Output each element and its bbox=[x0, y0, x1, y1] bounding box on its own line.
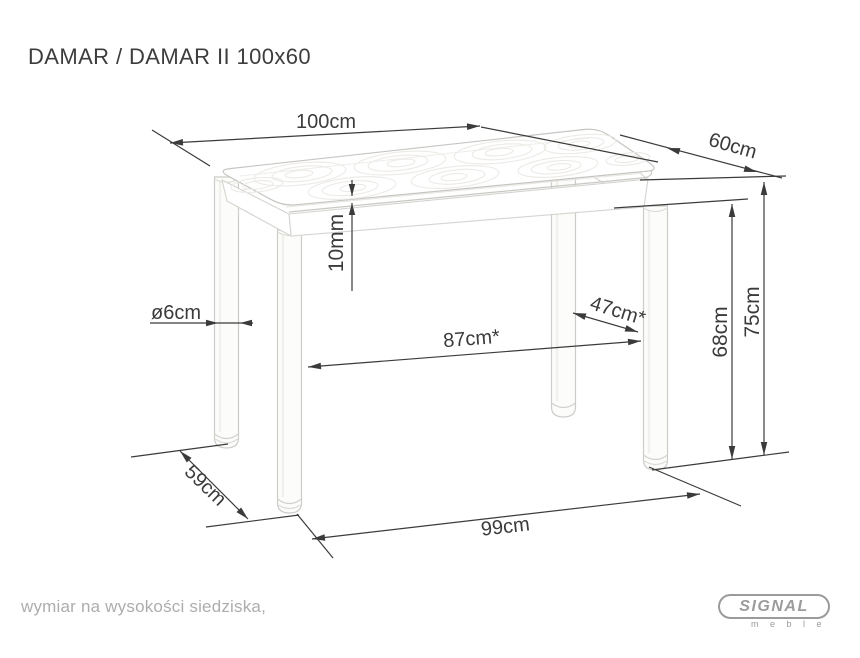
dim-label-inner-depth: 47cm* bbox=[587, 292, 648, 330]
dim-label-floor-depth: 59cm bbox=[180, 461, 230, 511]
table-leg-back-left bbox=[215, 177, 239, 448]
product-dimension-sheet: DAMAR / DAMAR II 100x60 bbox=[0, 0, 860, 658]
brand-logo-subtitle: m e b l e bbox=[718, 619, 830, 629]
brand-logo-text: SIGNAL bbox=[739, 599, 808, 615]
brand-logo-frame: SIGNAL bbox=[718, 594, 830, 619]
footnote-seat-height: wymiar na wysokości siedziska, bbox=[21, 597, 266, 617]
dim-label-height-under-frame: 68cm bbox=[709, 306, 732, 357]
table-technical-drawing: 100cm 60cm 10mm ø6cm 87cm* 47cm* 68cm 75… bbox=[0, 0, 860, 658]
dim-label-inner-length: 87cm* bbox=[442, 326, 500, 352]
dim-label-top-length: 100cm bbox=[296, 111, 356, 133]
dim-label-glass-thickness: 10mm bbox=[325, 214, 348, 272]
table-leg-front-left bbox=[278, 230, 302, 513]
brand-logo: SIGNAL m e b l e bbox=[718, 594, 830, 629]
table-leg-front-right bbox=[644, 206, 668, 470]
dim-label-leg-diameter: ø6cm bbox=[151, 302, 201, 324]
dim-label-floor-length: 99cm bbox=[480, 513, 531, 540]
dim-label-top-depth: 60cm bbox=[706, 129, 759, 164]
dim-label-total-height: 75cm bbox=[741, 286, 764, 337]
